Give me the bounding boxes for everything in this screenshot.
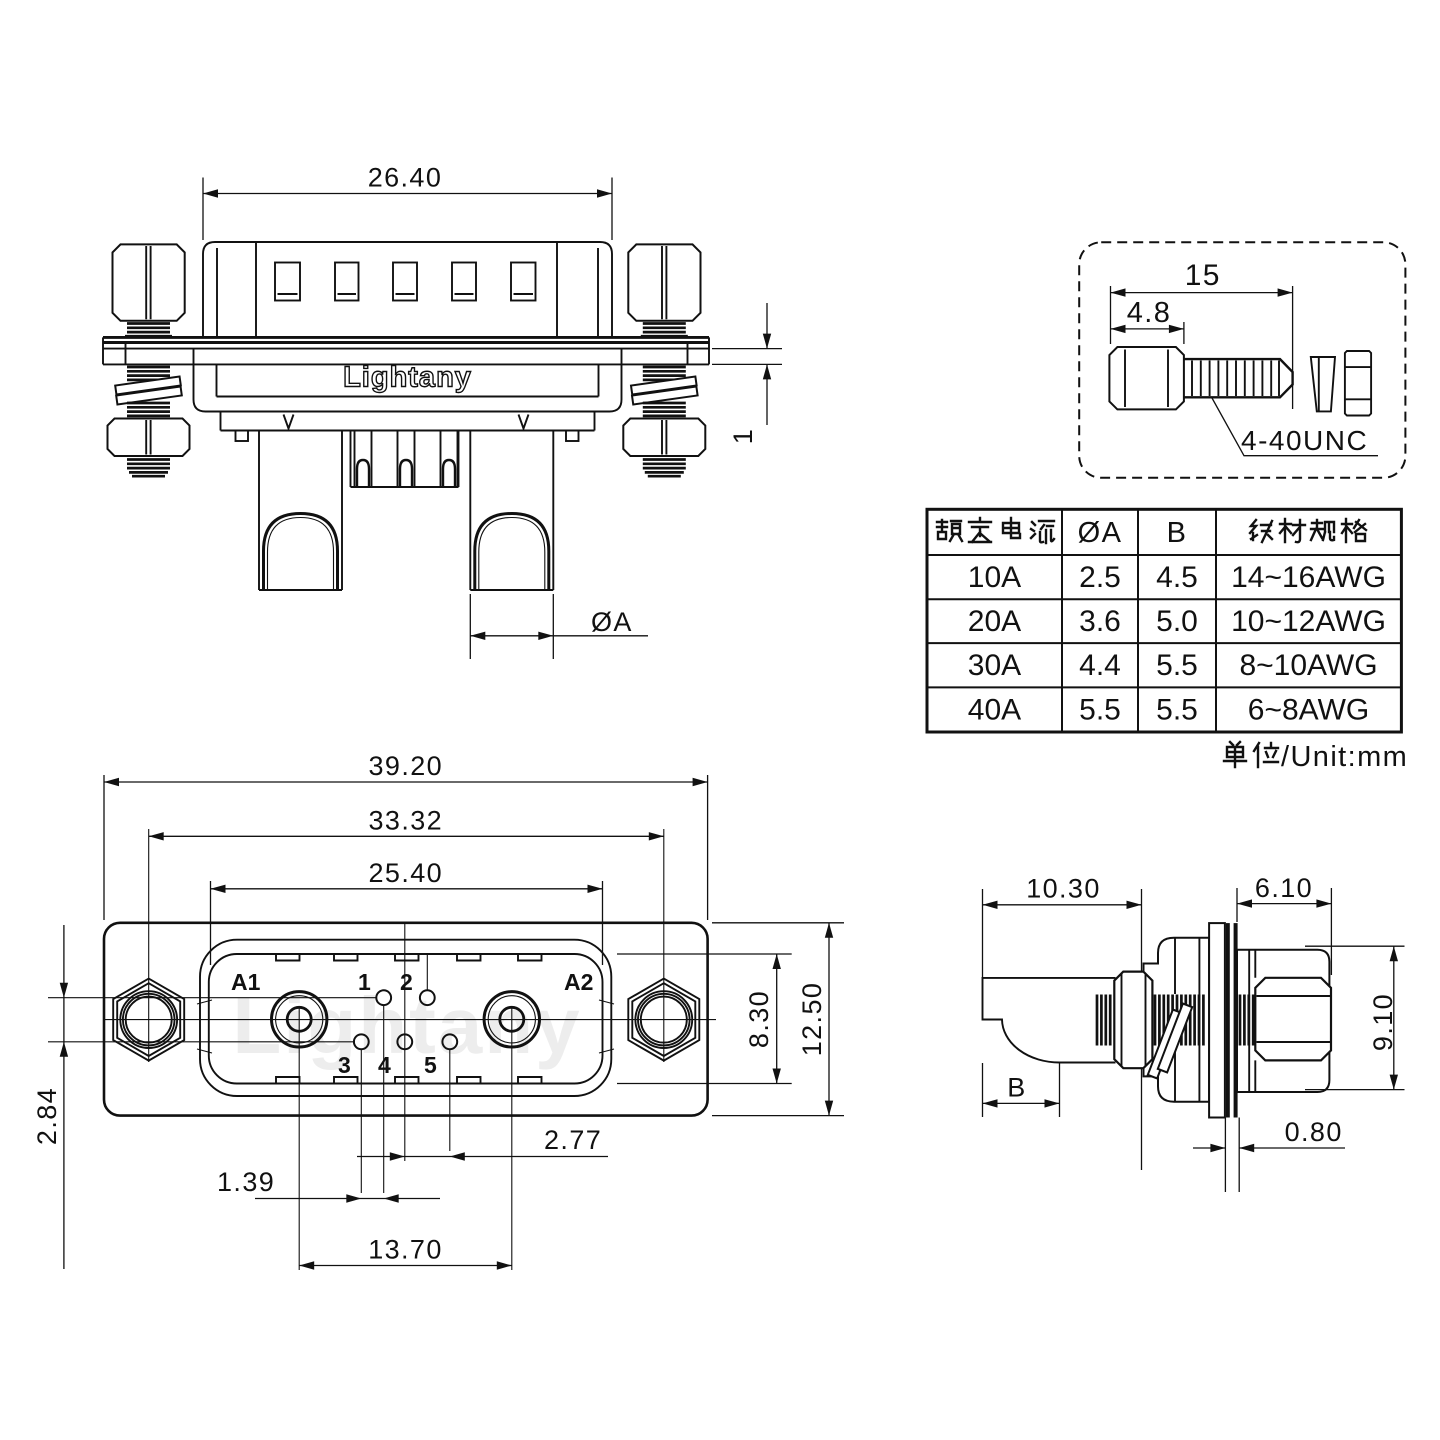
svg-text:2.77: 2.77 bbox=[544, 1125, 602, 1155]
svg-text:4-40UNC: 4-40UNC bbox=[1241, 425, 1368, 456]
svg-text:2.84: 2.84 bbox=[32, 1087, 62, 1145]
svg-text:5.5: 5.5 bbox=[1156, 694, 1198, 727]
svg-text:4.8: 4.8 bbox=[1127, 297, 1172, 329]
svg-text:6~8AWG: 6~8AWG bbox=[1248, 694, 1369, 727]
svg-text:26.40: 26.40 bbox=[368, 163, 443, 193]
svg-text:6.10: 6.10 bbox=[1255, 873, 1313, 903]
svg-text:1: 1 bbox=[728, 428, 758, 444]
svg-text:/Unit:mm: /Unit:mm bbox=[1281, 741, 1408, 773]
svg-text:A1: A1 bbox=[231, 969, 261, 995]
svg-text:33.32: 33.32 bbox=[369, 805, 444, 835]
svg-text:12.50: 12.50 bbox=[797, 982, 827, 1057]
svg-text:B: B bbox=[1007, 1073, 1026, 1103]
svg-text:4: 4 bbox=[378, 1052, 391, 1078]
svg-text:10.30: 10.30 bbox=[1026, 874, 1101, 904]
svg-text:13.70: 13.70 bbox=[368, 1235, 443, 1265]
svg-text:2: 2 bbox=[400, 969, 413, 995]
svg-text:B: B bbox=[1167, 517, 1188, 549]
svg-text:5.0: 5.0 bbox=[1156, 605, 1198, 638]
svg-text:ØA: ØA bbox=[591, 607, 633, 637]
svg-text:25.40: 25.40 bbox=[369, 858, 444, 888]
svg-text:3: 3 bbox=[338, 1052, 351, 1078]
svg-text:ØA: ØA bbox=[1078, 517, 1123, 549]
svg-text:40A: 40A bbox=[968, 694, 1021, 727]
svg-text:5.5: 5.5 bbox=[1156, 649, 1198, 682]
svg-text:30A: 30A bbox=[968, 649, 1021, 682]
svg-text:8~10AWG: 8~10AWG bbox=[1239, 649, 1377, 682]
svg-text:8.30: 8.30 bbox=[744, 990, 774, 1048]
svg-text:10A: 10A bbox=[968, 561, 1021, 594]
svg-text:9.10: 9.10 bbox=[1368, 993, 1398, 1051]
svg-text:5: 5 bbox=[424, 1052, 437, 1078]
svg-text:3.6: 3.6 bbox=[1079, 605, 1121, 638]
svg-text:0.80: 0.80 bbox=[1285, 1117, 1343, 1147]
svg-text:5.5: 5.5 bbox=[1079, 694, 1121, 727]
svg-text:Lightany: Lightany bbox=[343, 362, 472, 394]
svg-text:2.5: 2.5 bbox=[1079, 561, 1121, 594]
svg-text:20A: 20A bbox=[968, 605, 1021, 638]
svg-text:10~12AWG: 10~12AWG bbox=[1231, 605, 1386, 638]
svg-text:4.4: 4.4 bbox=[1079, 649, 1121, 682]
svg-text:14~16AWG: 14~16AWG bbox=[1231, 561, 1386, 594]
svg-text:15: 15 bbox=[1185, 259, 1221, 292]
svg-text:4.5: 4.5 bbox=[1156, 561, 1198, 594]
svg-text:1: 1 bbox=[358, 969, 371, 995]
svg-text:A2: A2 bbox=[564, 969, 593, 995]
svg-text:39.20: 39.20 bbox=[369, 751, 444, 781]
svg-text:1.39: 1.39 bbox=[217, 1167, 275, 1197]
